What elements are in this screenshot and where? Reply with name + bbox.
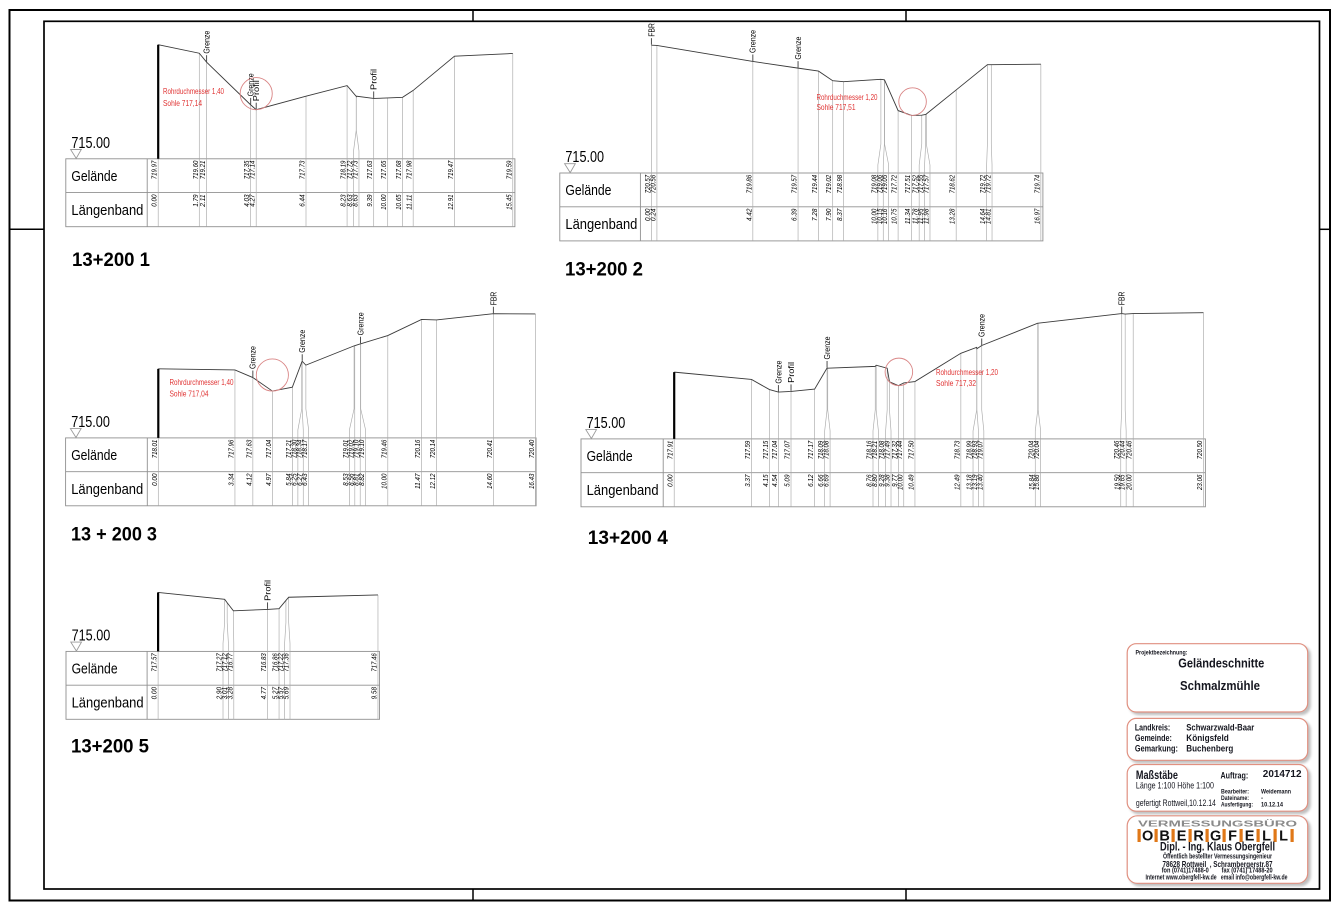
svg-text:718.01: 718.01 bbox=[152, 440, 159, 459]
svg-text:0.00: 0.00 bbox=[668, 474, 675, 486]
svg-text:20.00: 20.00 bbox=[1127, 474, 1134, 490]
svg-text:Sohle 717,51: Sohle 717,51 bbox=[817, 102, 856, 112]
svg-text:L: L bbox=[1279, 829, 1288, 845]
svg-text:719.46: 719.46 bbox=[381, 440, 388, 459]
svg-text:717.04: 717.04 bbox=[266, 440, 273, 459]
svg-text:4.42: 4.42 bbox=[746, 209, 753, 221]
svg-text:15.86: 15.86 bbox=[1034, 474, 1041, 490]
svg-text:Gelände: Gelände bbox=[71, 447, 117, 464]
svg-text:Rohrduchmesser 1,40: Rohrduchmesser 1,40 bbox=[163, 86, 224, 96]
svg-text:10.16: 10.16 bbox=[882, 209, 889, 225]
svg-text:0.00: 0.00 bbox=[152, 473, 159, 485]
svg-text:717.63: 717.63 bbox=[367, 161, 374, 180]
svg-text:gefertigt Rottweil,10.12.14: gefertigt Rottweil,10.12.14 bbox=[1136, 798, 1216, 808]
svg-text:10.49: 10.49 bbox=[908, 474, 915, 490]
svg-text:717.57: 717.57 bbox=[152, 652, 159, 672]
svg-text:3.34: 3.34 bbox=[228, 473, 235, 485]
svg-text:Grenze: Grenze bbox=[773, 360, 783, 383]
svg-text:717.68: 717.68 bbox=[396, 161, 403, 180]
svg-text:14.81: 14.81 bbox=[986, 209, 993, 225]
svg-text:Gelände: Gelände bbox=[71, 168, 117, 185]
svg-text:Sohle 717,04: Sohle 717,04 bbox=[170, 389, 209, 399]
svg-text:Profil: Profil bbox=[786, 362, 796, 383]
svg-text:717.96: 717.96 bbox=[228, 440, 235, 459]
svg-text:8.82: 8.82 bbox=[359, 473, 366, 485]
svg-text:Grenze: Grenze bbox=[822, 336, 832, 359]
svg-text:719.07: 719.07 bbox=[977, 440, 984, 460]
svg-text:718.62: 718.62 bbox=[950, 175, 957, 194]
svg-text:718.21: 718.21 bbox=[872, 441, 879, 460]
svg-text:718.08: 718.08 bbox=[824, 441, 831, 460]
svg-text:Profil: Profil bbox=[369, 69, 379, 90]
svg-text:719.86: 719.86 bbox=[746, 175, 753, 194]
svg-text:720.50: 720.50 bbox=[1197, 441, 1204, 460]
svg-text:717.59: 717.59 bbox=[745, 441, 752, 460]
svg-text:Schmalzmühle: Schmalzmühle bbox=[1180, 678, 1260, 693]
svg-text:6.44: 6.44 bbox=[300, 194, 307, 206]
svg-text:13+200 1: 13+200 1 bbox=[72, 250, 150, 271]
svg-text:FBR: FBR bbox=[646, 23, 656, 37]
svg-text:Internet www.obergfell-kw.de: Internet www.obergfell-kw.de email info@… bbox=[1146, 875, 1288, 882]
svg-text:8.37: 8.37 bbox=[837, 208, 844, 221]
svg-text:717.14: 717.14 bbox=[250, 161, 257, 180]
svg-text:10.00: 10.00 bbox=[897, 474, 904, 490]
svg-text:Profil: Profil bbox=[251, 80, 261, 101]
svg-text:720.46: 720.46 bbox=[1127, 441, 1134, 460]
svg-text:11.47: 11.47 bbox=[415, 472, 422, 489]
svg-text:13.40: 13.40 bbox=[977, 474, 984, 490]
svg-text:16.97: 16.97 bbox=[1034, 208, 1041, 224]
svg-text:12.12: 12.12 bbox=[430, 473, 437, 489]
svg-text:Dipl. - Ing. Klaus Obergfell: Dipl. - Ing. Klaus Obergfell bbox=[1160, 840, 1275, 854]
svg-text:4.27: 4.27 bbox=[250, 193, 257, 206]
svg-text:Grenze: Grenze bbox=[355, 312, 365, 335]
svg-text:Auftrag:: Auftrag: bbox=[1221, 771, 1249, 782]
svg-text:10.65: 10.65 bbox=[396, 194, 403, 210]
svg-text:FBR: FBR bbox=[1117, 292, 1127, 306]
svg-text:717.50: 717.50 bbox=[908, 441, 915, 460]
svg-text:Geländeschnitte: Geländeschnitte bbox=[1178, 655, 1264, 670]
svg-text:4.12: 4.12 bbox=[246, 473, 253, 485]
svg-text:7.28: 7.28 bbox=[812, 209, 819, 221]
svg-text:717.44: 717.44 bbox=[897, 441, 904, 460]
svg-text:13.28: 13.28 bbox=[950, 209, 957, 225]
svg-text:Schwarzwald-Baar: Schwarzwald-Baar bbox=[1186, 722, 1254, 732]
svg-text:3.37: 3.37 bbox=[745, 473, 752, 486]
svg-text:9.58: 9.58 bbox=[371, 687, 378, 699]
svg-text:19.65: 19.65 bbox=[1120, 474, 1127, 490]
svg-text:Rohrdurchmesser 1,40: Rohrdurchmesser 1,40 bbox=[170, 377, 234, 387]
svg-text:Landkreis:: Landkreis: bbox=[1135, 722, 1170, 732]
svg-text:O: O bbox=[1142, 829, 1153, 845]
svg-text:Länge 1:100 Höhe 1:100: Länge 1:100 Höhe 1:100 bbox=[1136, 781, 1214, 792]
svg-text:2014712: 2014712 bbox=[1263, 768, 1302, 780]
svg-text:717.98: 717.98 bbox=[407, 161, 414, 180]
svg-text:717.46: 717.46 bbox=[371, 653, 378, 672]
svg-text:719.47: 719.47 bbox=[448, 160, 455, 180]
svg-text:717.73: 717.73 bbox=[300, 161, 307, 180]
svg-text:717.51: 717.51 bbox=[905, 175, 912, 194]
svg-text:717.17: 717.17 bbox=[808, 440, 815, 460]
svg-text:6.43: 6.43 bbox=[302, 473, 309, 485]
svg-text:Buchenberg: Buchenberg bbox=[1186, 744, 1233, 754]
svg-text:719.21: 719.21 bbox=[200, 161, 207, 180]
svg-text:Längenband: Längenband bbox=[565, 216, 637, 233]
svg-text:0.00: 0.00 bbox=[152, 687, 159, 699]
svg-text:11.98: 11.98 bbox=[923, 209, 930, 225]
svg-text:717.07: 717.07 bbox=[785, 440, 792, 460]
svg-text:717.63: 717.63 bbox=[246, 440, 253, 459]
svg-text:720.40: 720.40 bbox=[529, 440, 536, 459]
svg-text:719.74: 719.74 bbox=[1034, 175, 1041, 194]
svg-text:Königsfeld: Königsfeld bbox=[1186, 733, 1229, 743]
svg-text:23.06: 23.06 bbox=[1197, 474, 1204, 490]
svg-text:13 + 200 3: 13 + 200 3 bbox=[71, 525, 157, 546]
svg-text:719.10: 719.10 bbox=[359, 440, 366, 459]
svg-text:720.04: 720.04 bbox=[1034, 441, 1041, 460]
svg-text:10.00: 10.00 bbox=[381, 473, 388, 489]
svg-text:720.16: 720.16 bbox=[415, 440, 422, 459]
svg-text:4.97: 4.97 bbox=[266, 472, 273, 485]
svg-text:717.65: 717.65 bbox=[381, 161, 388, 180]
svg-text:15.45: 15.45 bbox=[506, 194, 513, 210]
svg-text:719.59: 719.59 bbox=[506, 161, 513, 180]
svg-text:Profil: Profil bbox=[262, 580, 272, 601]
svg-text:4.77: 4.77 bbox=[261, 686, 268, 699]
svg-text:720.44: 720.44 bbox=[1120, 441, 1127, 460]
svg-text:Längenband: Längenband bbox=[72, 695, 144, 712]
svg-text:6.39: 6.39 bbox=[792, 209, 799, 221]
svg-text:13+200 4: 13+200 4 bbox=[588, 528, 668, 549]
svg-text:5.09: 5.09 bbox=[785, 474, 792, 486]
svg-text:10.12.14: 10.12.14 bbox=[1261, 802, 1283, 809]
svg-text:720.41: 720.41 bbox=[487, 440, 494, 459]
svg-text:12.91: 12.91 bbox=[448, 194, 455, 210]
svg-text:Längenband: Längenband bbox=[71, 202, 143, 219]
svg-text:Längenband: Längenband bbox=[587, 482, 659, 499]
svg-text:16.43: 16.43 bbox=[529, 473, 536, 489]
svg-text:9.38: 9.38 bbox=[885, 474, 892, 486]
svg-text:720.14: 720.14 bbox=[430, 440, 437, 459]
svg-text:13+200 5: 13+200 5 bbox=[71, 737, 149, 758]
svg-text:0.00: 0.00 bbox=[152, 194, 159, 206]
svg-text:Ausfertigung:: Ausfertigung: bbox=[1221, 802, 1253, 809]
svg-text:10.00: 10.00 bbox=[381, 194, 388, 210]
svg-text:717.04: 717.04 bbox=[772, 441, 779, 460]
svg-text:8.80: 8.80 bbox=[872, 474, 879, 486]
svg-text:6.69: 6.69 bbox=[824, 474, 831, 486]
svg-text:11.34: 11.34 bbox=[905, 209, 912, 225]
svg-text:3.28: 3.28 bbox=[227, 687, 234, 699]
svg-text:Grenze: Grenze bbox=[248, 346, 258, 369]
svg-text:2.11: 2.11 bbox=[200, 194, 207, 207]
svg-text:7.90: 7.90 bbox=[826, 209, 833, 221]
svg-text:718.17: 718.17 bbox=[302, 439, 309, 459]
svg-text:Grenze: Grenze bbox=[297, 329, 307, 352]
svg-text:14.60: 14.60 bbox=[487, 473, 494, 489]
svg-text:6.12: 6.12 bbox=[808, 474, 815, 486]
svg-text:716.77: 716.77 bbox=[227, 652, 234, 672]
svg-text:719.02: 719.02 bbox=[826, 175, 833, 194]
svg-text:11.11: 11.11 bbox=[407, 194, 414, 210]
svg-text:717.91: 717.91 bbox=[668, 441, 675, 460]
svg-text:Gelände: Gelände bbox=[565, 182, 611, 199]
svg-text:Grenze: Grenze bbox=[793, 36, 803, 59]
svg-text:5.69: 5.69 bbox=[284, 687, 291, 699]
svg-text:717.57: 717.57 bbox=[923, 174, 930, 194]
svg-text:4.54: 4.54 bbox=[772, 474, 779, 486]
svg-text:Gelände: Gelände bbox=[587, 448, 633, 465]
svg-text:719.97: 719.97 bbox=[152, 160, 159, 180]
svg-text:718.73: 718.73 bbox=[954, 441, 961, 460]
svg-text:13+200 2: 13+200 2 bbox=[565, 260, 643, 281]
svg-text:Gemarkung:: Gemarkung: bbox=[1135, 744, 1178, 754]
svg-text:719.57: 719.57 bbox=[792, 174, 799, 194]
svg-text:1.79: 1.79 bbox=[193, 194, 200, 206]
svg-text:Weidemann: Weidemann bbox=[1261, 789, 1291, 796]
svg-text:717.73: 717.73 bbox=[352, 161, 359, 180]
svg-text:719.44: 719.44 bbox=[812, 175, 819, 194]
svg-text:VERMESSUNGSBÜRO: VERMESSUNGSBÜRO bbox=[1138, 819, 1298, 829]
svg-text:719.60: 719.60 bbox=[193, 161, 200, 180]
svg-text:Sohle 717,32: Sohle 717,32 bbox=[936, 378, 976, 388]
svg-text:FBR: FBR bbox=[488, 292, 498, 306]
svg-text:Grenze: Grenze bbox=[977, 314, 987, 337]
svg-text:Gemeinde:: Gemeinde: bbox=[1135, 733, 1172, 743]
svg-text:Längenband: Längenband bbox=[71, 481, 143, 498]
svg-text:719.05: 719.05 bbox=[882, 175, 889, 194]
svg-text:717.49: 717.49 bbox=[885, 441, 892, 460]
svg-text:0.24: 0.24 bbox=[650, 209, 657, 221]
svg-text:8.63: 8.63 bbox=[352, 194, 359, 206]
svg-text:716.83: 716.83 bbox=[261, 653, 268, 672]
svg-text:720.56: 720.56 bbox=[650, 175, 657, 194]
svg-text:717.36: 717.36 bbox=[284, 653, 291, 672]
svg-text:Grenze: Grenze bbox=[748, 30, 758, 53]
svg-text:717.72: 717.72 bbox=[892, 175, 899, 194]
svg-text:9.39: 9.39 bbox=[367, 194, 374, 206]
svg-text:Rohrduchmesser 1,20: Rohrduchmesser 1,20 bbox=[817, 92, 878, 102]
svg-text:Rohdurchmesser 1,20: Rohdurchmesser 1,20 bbox=[936, 367, 998, 377]
svg-text:10.75: 10.75 bbox=[892, 209, 899, 225]
svg-text:718.98: 718.98 bbox=[837, 175, 844, 194]
svg-text:717.15: 717.15 bbox=[763, 441, 770, 460]
svg-text:12.49: 12.49 bbox=[954, 474, 961, 490]
svg-text:Gelände: Gelände bbox=[72, 661, 118, 678]
svg-text:4.15: 4.15 bbox=[763, 474, 770, 486]
svg-text:Sohle 717,14: Sohle 717,14 bbox=[163, 98, 202, 108]
svg-text:Grenze: Grenze bbox=[202, 30, 212, 53]
svg-text:719.72: 719.72 bbox=[986, 175, 993, 194]
